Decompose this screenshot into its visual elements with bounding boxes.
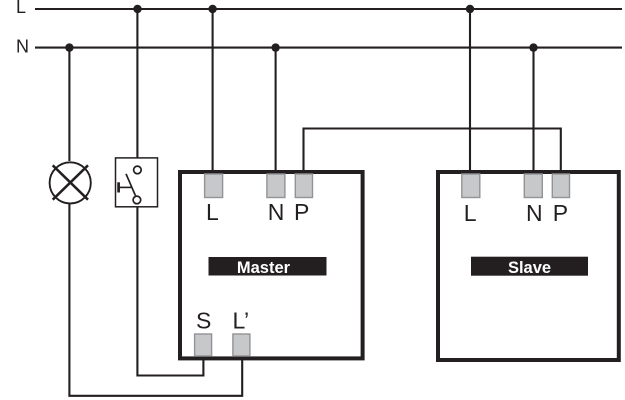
svg-text:N: N: [526, 200, 543, 226]
svg-text:S: S: [196, 308, 211, 334]
svg-text:P: P: [553, 200, 568, 226]
svg-text:N: N: [268, 199, 285, 225]
svg-text:P: P: [294, 199, 309, 225]
svg-text:N: N: [16, 37, 29, 57]
svg-text:L’: L’: [233, 308, 250, 334]
svg-text:Master: Master: [237, 259, 291, 277]
svg-text:L: L: [464, 200, 477, 226]
svg-text:L: L: [206, 199, 219, 225]
svg-text:L: L: [16, 0, 26, 17]
svg-text:Slave: Slave: [508, 259, 551, 277]
